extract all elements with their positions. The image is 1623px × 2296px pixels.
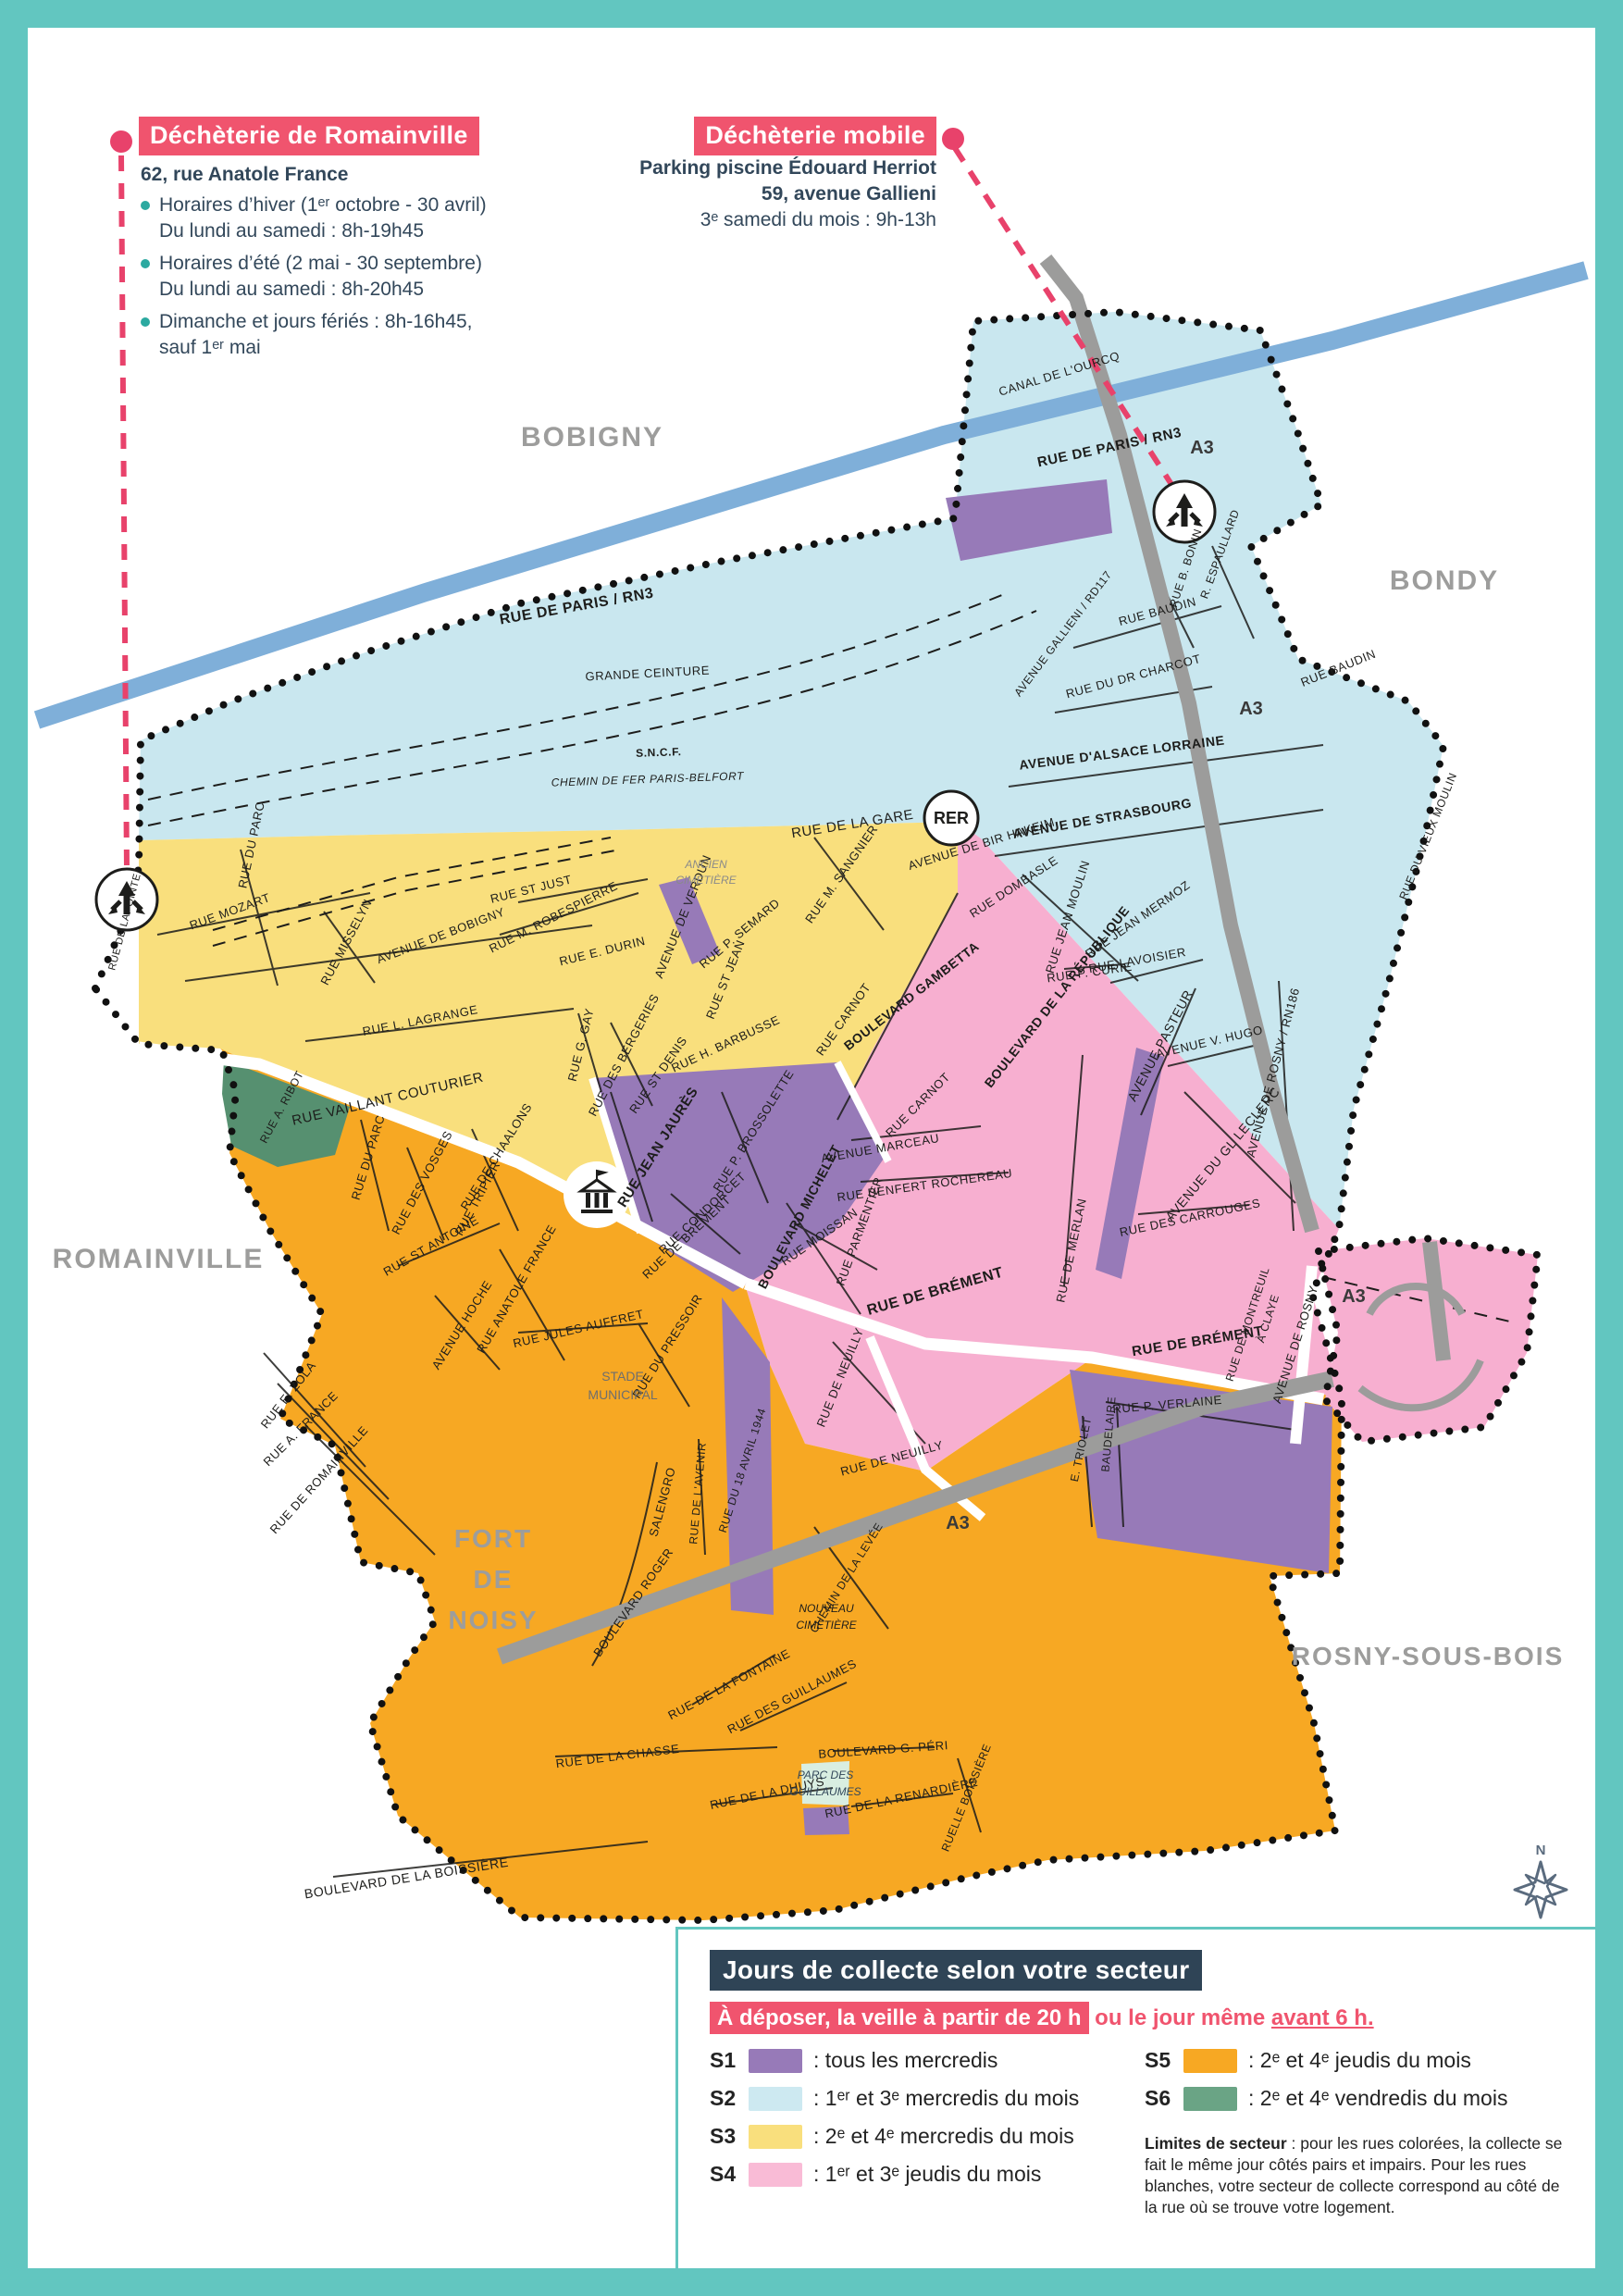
legend-row-s4: S4: 1ᵉʳ et 3ᵉ jeudis du mois — [710, 2162, 1145, 2187]
bullet-dot-icon — [141, 259, 150, 268]
city-label: NOISY — [448, 1606, 538, 1634]
legend-row-s3: S3: 2ᵉ et 4ᵉ mercredis du mois — [710, 2124, 1145, 2149]
legend-title: Jours de collecte selon votre secteur — [710, 1950, 1202, 1991]
dechetterie-mobile-box: Déchèterie mobile Parking piscine Édouar… — [574, 117, 936, 233]
sector-id: S1 — [710, 2048, 749, 2073]
hours-item: Dimanche et jours fériés : 8h-16h45,sauf… — [139, 309, 583, 361]
place-label: NOUVEAU — [799, 1602, 854, 1615]
dechetterie-romainville-hours-list: Horaires d’hiver (1ᵉʳ octobre - 30 avril… — [139, 192, 583, 361]
sector-id: S3 — [710, 2124, 749, 2149]
deposit-highlight: À déposer, la veille à partir de 20 h — [710, 2002, 1089, 2034]
street-label: S.N.C.F. — [636, 745, 682, 760]
dechetterie-mobile-icon — [1154, 481, 1215, 542]
deposit-underline: avant 6 h. — [1271, 2005, 1374, 2030]
sector-label: : 1ᵉʳ et 3ᵉ jeudis du mois — [813, 2162, 1041, 2187]
city-label: BONDY — [1390, 565, 1499, 596]
sector-swatch — [749, 2163, 802, 2187]
dechetterie-mobile-title: Déchèterie mobile — [694, 117, 936, 155]
sector-label: : 2ᵉ et 4ᵉ jeudis du mois — [1248, 2048, 1471, 2073]
legend-row-s6: S6: 2ᵉ et 4ᵉ vendredis du mois — [1145, 2086, 1580, 2111]
mobile-marker-dot — [942, 128, 964, 150]
legend-row-s5: S5: 2ᵉ et 4ᵉ jeudis du mois — [1145, 2048, 1580, 2073]
sector-label: : tous les mercredis — [813, 2048, 997, 2073]
legend-row-s1: S1: tous les mercredis — [710, 2048, 1145, 2073]
romainville-marker-dot — [110, 130, 132, 153]
mobile-detail-line: 59, avenue Gallieni — [574, 181, 936, 207]
sector-swatch — [1183, 2087, 1237, 2111]
city-label: ROMAINVILLE — [53, 1244, 265, 1274]
legend-column-right: S5: 2ᵉ et 4ᵉ jeudis du moisS6: 2ᵉ et 4ᵉ … — [1145, 2048, 1580, 2218]
place-label: STADE — [601, 1369, 644, 1384]
motorway-label: A3 — [946, 1513, 970, 1533]
bullet-dot-icon — [141, 317, 150, 327]
motorway-label: A3 — [1190, 438, 1214, 458]
sector-id: S6 — [1145, 2086, 1183, 2111]
hours-item: Horaires d’été (2 mai - 30 septembre)Du … — [139, 251, 583, 303]
sector-swatch — [749, 2125, 802, 2149]
city-label: DE — [474, 1565, 514, 1594]
sector-label: : 2ᵉ et 4ᵉ mercredis du mois — [813, 2124, 1074, 2149]
dechetterie-romainville-title: Déchèterie de Romainville — [139, 117, 479, 155]
sector-label: : 1ᵉʳ et 3ᵉ mercredis du mois — [813, 2086, 1079, 2111]
motorway-label: A3 — [1239, 699, 1263, 719]
hours-item: Horaires d’hiver (1ᵉʳ octobre - 30 avril… — [139, 192, 583, 244]
legend-panel: Jours de collecte selon votre secteur À … — [675, 1927, 1613, 2281]
svg-text:RER: RER — [934, 809, 969, 827]
city-label: BOBIGNY — [521, 422, 663, 453]
sector-swatch — [1183, 2049, 1237, 2073]
sector-id: S2 — [710, 2086, 749, 2111]
bullet-dot-icon — [141, 201, 150, 210]
place-label: ANCIEN — [684, 858, 727, 871]
legend-column-left: S1: tous les mercredisS2: 1ᵉʳ et 3ᵉ merc… — [710, 2048, 1145, 2218]
deposit-rest: ou le jour même — [1089, 2005, 1271, 2030]
poster-page: RER N CANAL DE L'OURCQRUE DE PARIS / RN3… — [0, 0, 1623, 2296]
legend-note: Limites de secteur : pour les rues color… — [1145, 2133, 1563, 2218]
place-label: GUILLAUMES — [789, 1785, 861, 1798]
dechetterie-mobile-details: Parking piscine Édouard Herriot59, avenu… — [574, 155, 936, 233]
compass-rose-icon: N — [1515, 1843, 1567, 1917]
sector-label: : 2ᵉ et 4ᵉ vendredis du mois — [1248, 2086, 1507, 2111]
mobile-detail-line: 3ᵉ samedi du mois : 9h-13h — [574, 207, 936, 233]
place-label: CIMETIÈRE — [796, 1618, 857, 1632]
place-label: CIMETIÈRE — [675, 873, 737, 887]
legend-deposit-rule: À déposer, la veille à partir de 20 h ou… — [710, 2005, 1613, 2031]
svg-text:N: N — [1536, 1843, 1546, 1858]
place-label: MUNICIPAL — [588, 1387, 657, 1402]
sector-swatch — [749, 2087, 802, 2111]
dechetterie-romainville-box: Déchèterie de Romainville 62, rue Anatol… — [139, 117, 583, 361]
motorway-label: A3 — [1342, 1286, 1366, 1307]
city-label: FORT — [454, 1524, 532, 1553]
dechetterie-romainville-address: 62, rue Anatole France — [141, 164, 583, 186]
mobile-detail-line: Parking piscine Édouard Herriot — [574, 155, 936, 181]
sector-swatch — [749, 2049, 802, 2073]
sector-id: S5 — [1145, 2048, 1183, 2073]
legend-row-s2: S2: 1ᵉʳ et 3ᵉ mercredis du mois — [710, 2086, 1145, 2111]
place-label: PARC DES — [798, 1769, 853, 1781]
rer-station-badge: RER — [924, 791, 978, 845]
city-label: ROSNY-SOUS-BOIS — [1292, 1642, 1564, 1670]
sector-id: S4 — [710, 2162, 749, 2187]
